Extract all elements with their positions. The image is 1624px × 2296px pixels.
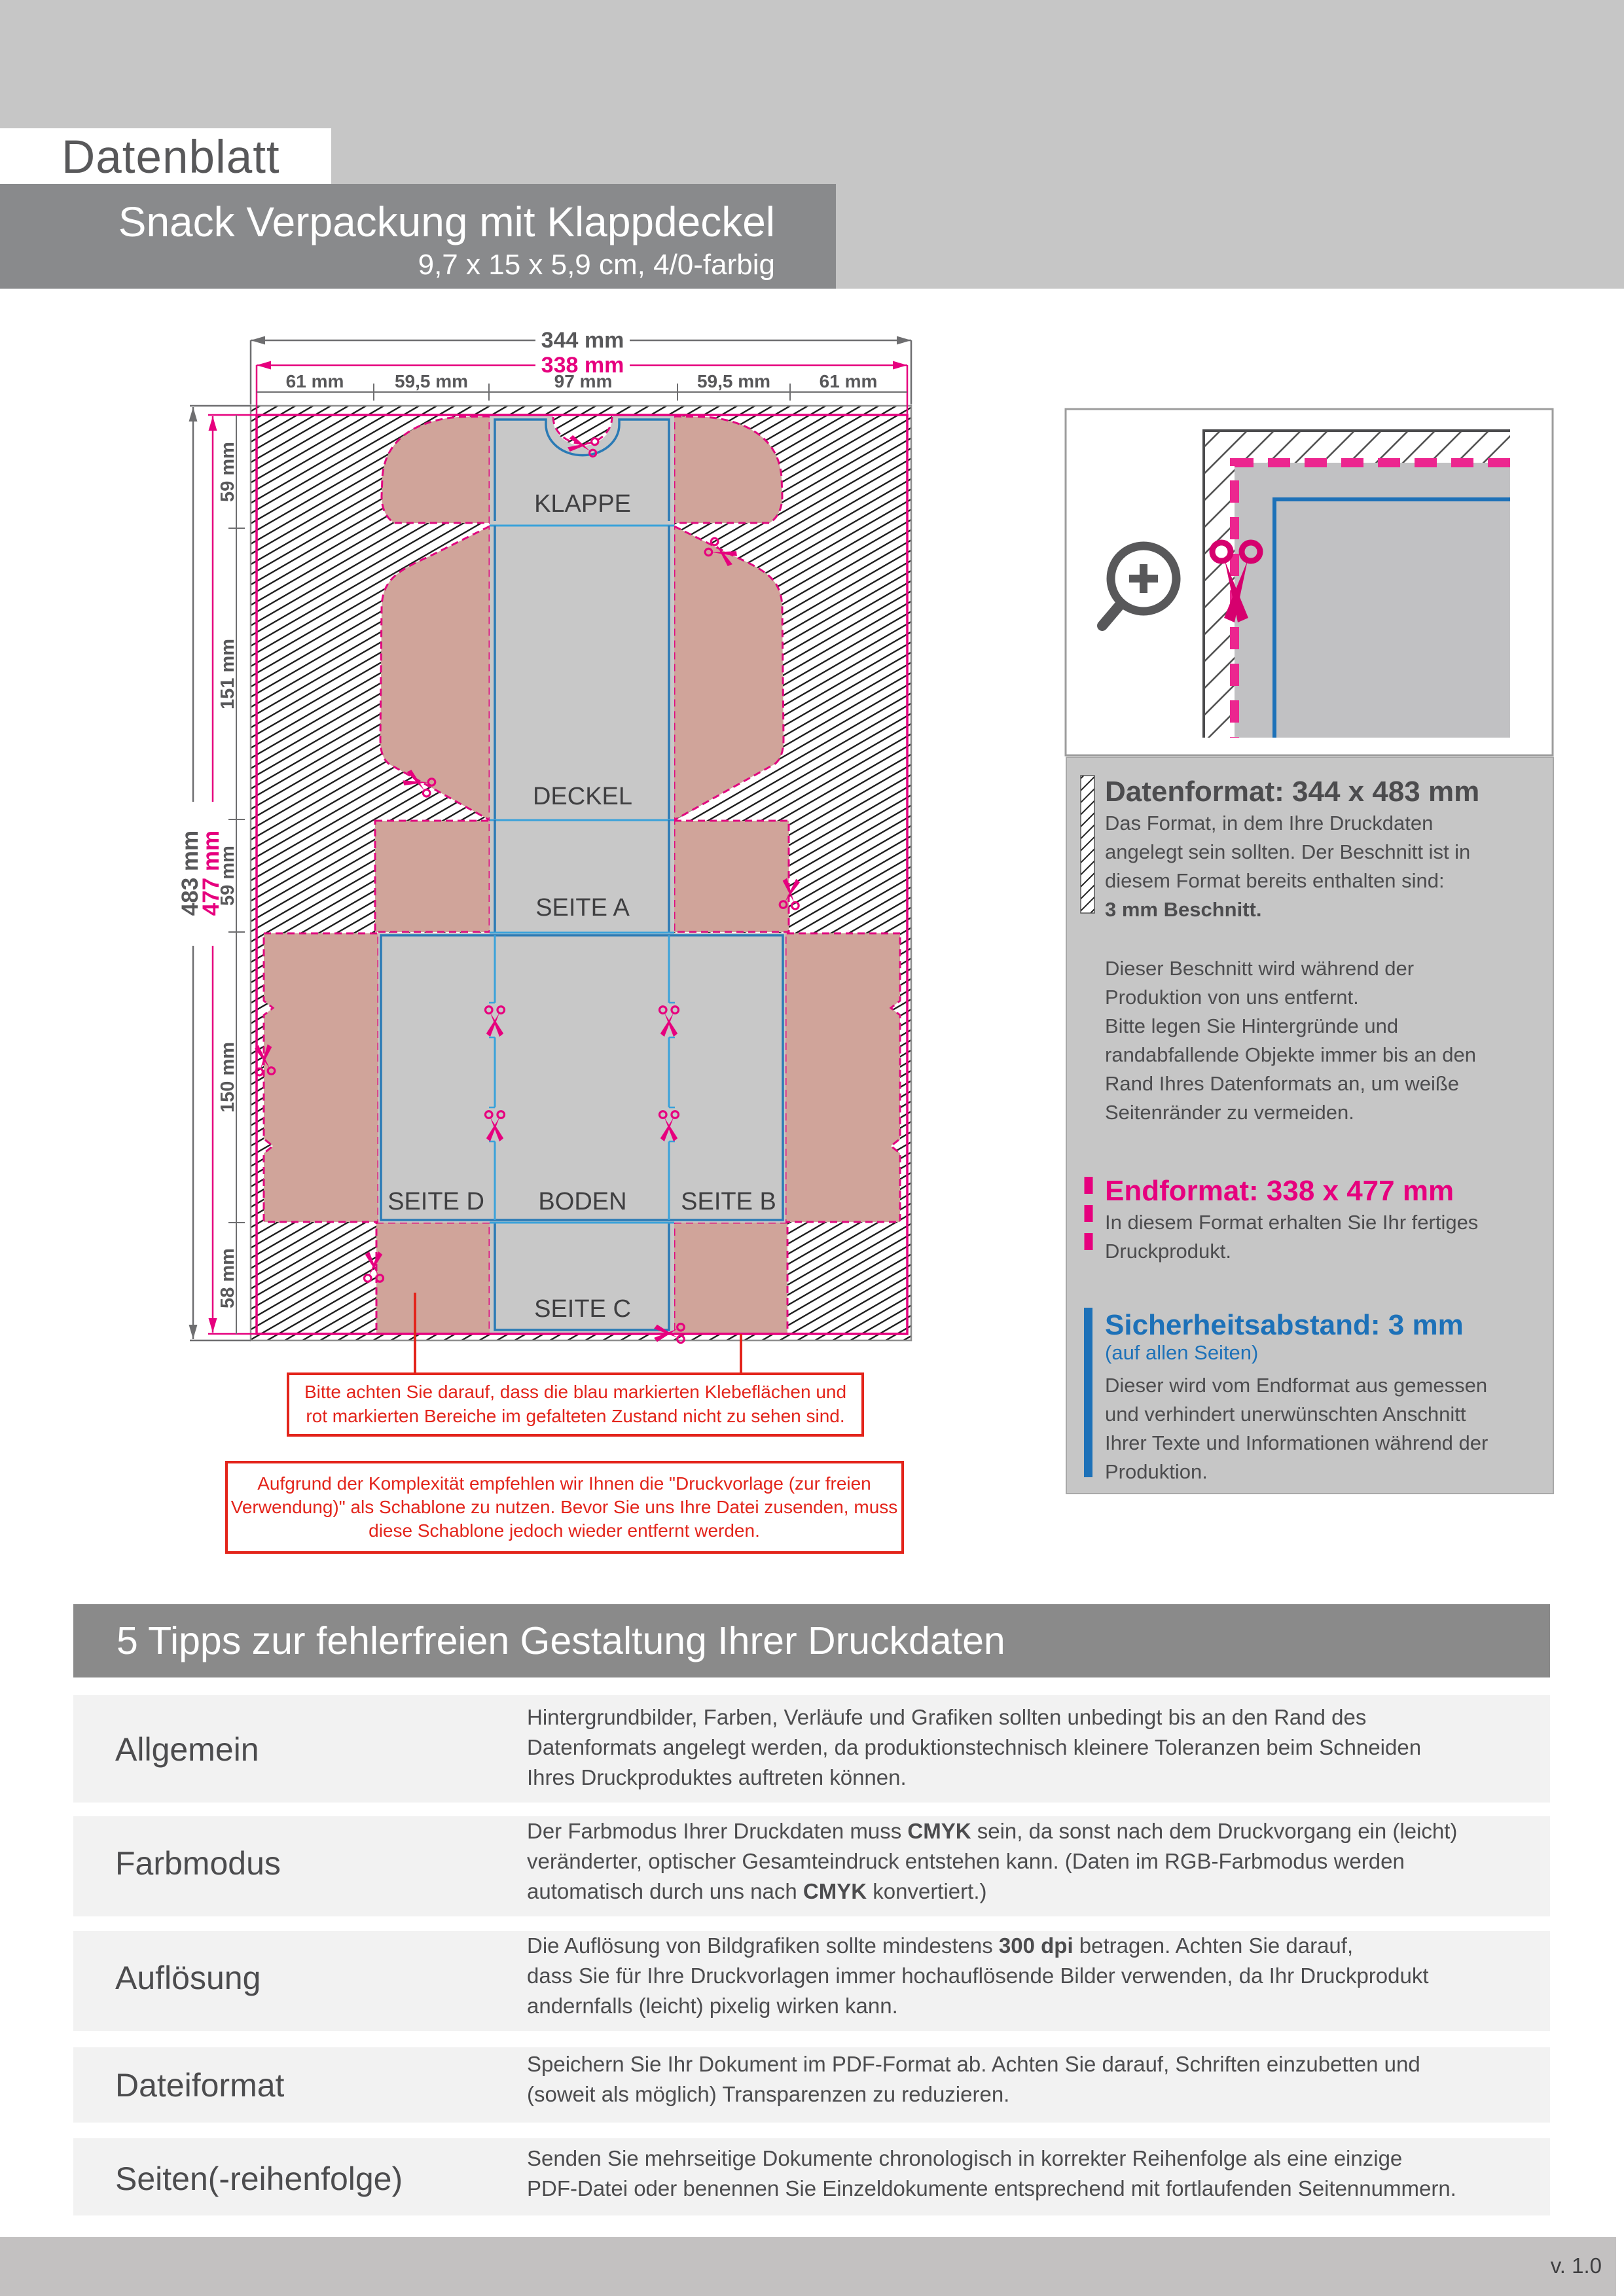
svg-text:Verwendung)" als Schablone zu: Verwendung)" als Schablone zu nutzen. Be… [231, 1497, 898, 1517]
svg-text:rot markierten Bereiche im gef: rot markierten Bereiche im gefalteten Zu… [306, 1406, 844, 1426]
svg-text:BODEN: BODEN [538, 1188, 626, 1215]
svg-text:DECKEL: DECKEL [533, 783, 632, 810]
svg-text:61 mm: 61 mm [820, 371, 878, 391]
svg-text:58 mm: 58 mm [217, 1248, 238, 1308]
svg-text:150 mm: 150 mm [217, 1042, 238, 1113]
svg-text:KLAPPE: KLAPPE [534, 490, 631, 518]
svg-text:61 mm: 61 mm [286, 371, 344, 391]
svg-text:151 mm: 151 mm [217, 639, 238, 709]
svg-text:59 mm: 59 mm [217, 846, 238, 906]
svg-text:SEITE C: SEITE C [534, 1295, 631, 1323]
svg-text:diese Schablone jedoch wieder: diese Schablone jedoch wieder entfernt w… [369, 1520, 760, 1541]
svg-text:59 mm: 59 mm [217, 442, 238, 502]
svg-text:59,5 mm: 59,5 mm [697, 371, 770, 391]
svg-text:SEITE D: SEITE D [388, 1188, 484, 1215]
svg-text:59,5 mm: 59,5 mm [395, 371, 468, 391]
svg-text:SEITE B: SEITE B [681, 1188, 776, 1215]
svg-text:SEITE A: SEITE A [535, 894, 630, 922]
svg-text:344 mm: 344 mm [541, 328, 624, 353]
svg-text:Bitte achten Sie darauf, dass: Bitte achten Sie darauf, dass die blau m… [304, 1382, 846, 1402]
svg-text:97 mm: 97 mm [554, 371, 613, 391]
svg-text:Aufgrund der Komplexität empfe: Aufgrund der Komplexität empfehlen wir I… [257, 1473, 871, 1494]
